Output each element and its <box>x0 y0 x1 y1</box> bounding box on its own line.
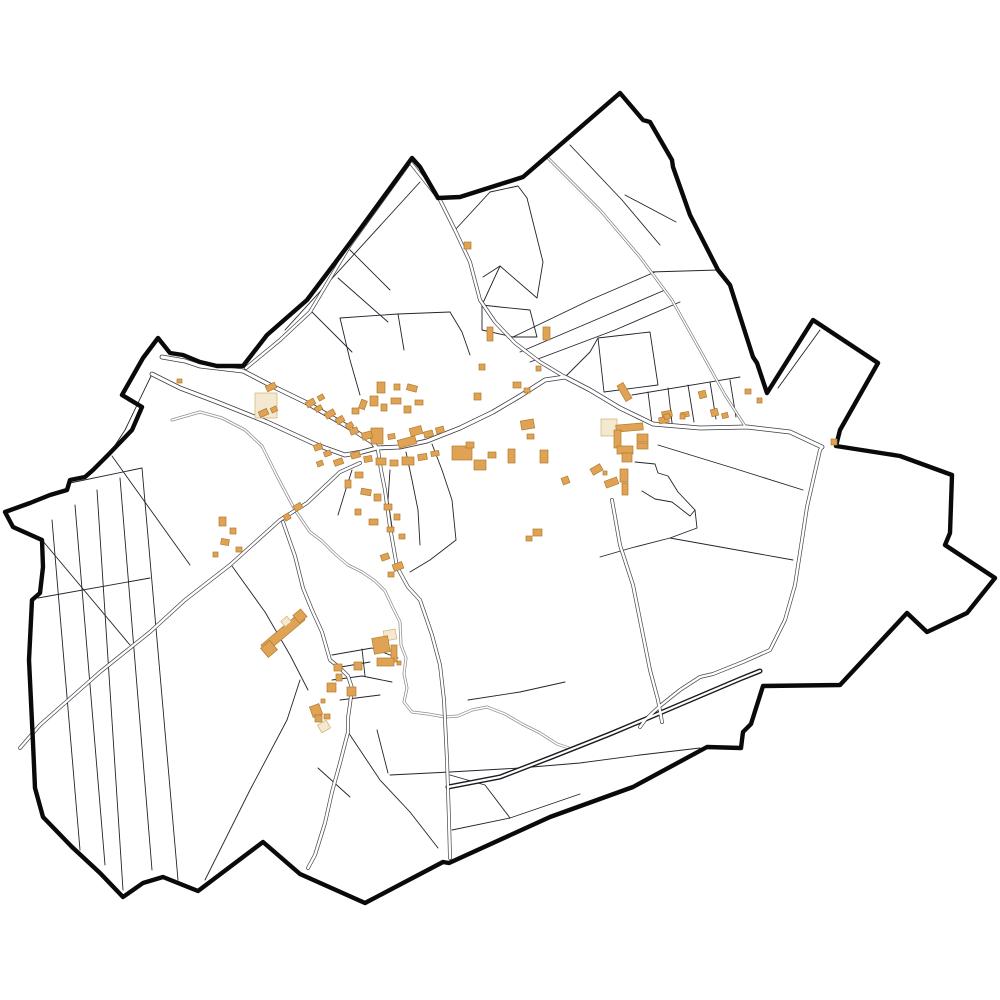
map-canvas <box>0 0 1000 1000</box>
building <box>721 412 728 418</box>
road-network <box>20 158 822 868</box>
building <box>230 528 236 534</box>
building <box>381 404 387 411</box>
building <box>369 519 378 525</box>
parcel-line <box>97 490 123 890</box>
building <box>757 398 762 403</box>
building <box>637 443 648 449</box>
building <box>374 494 381 501</box>
building <box>622 453 632 462</box>
building <box>479 364 485 370</box>
building <box>637 434 648 442</box>
building <box>404 406 411 413</box>
building <box>415 400 423 405</box>
building <box>347 687 356 696</box>
building <box>394 384 400 390</box>
parcel-line <box>468 682 565 700</box>
building <box>390 460 398 466</box>
parcel-line <box>232 566 308 690</box>
parcel-line <box>285 182 420 330</box>
building <box>409 426 423 437</box>
parcel-line <box>600 538 670 557</box>
parcel-line <box>565 338 598 377</box>
building <box>663 413 670 419</box>
building <box>397 661 401 665</box>
road-north-notch <box>246 162 565 377</box>
building <box>352 408 359 414</box>
parcel-line <box>625 195 676 222</box>
building <box>680 414 685 419</box>
building <box>355 509 361 515</box>
parcel-line <box>650 270 718 272</box>
building <box>406 384 417 392</box>
parcel-line <box>406 452 420 545</box>
building <box>388 572 394 577</box>
building <box>617 382 632 401</box>
building <box>354 662 362 670</box>
parcel-line <box>450 312 470 355</box>
building <box>316 460 323 467</box>
building <box>213 552 218 557</box>
building <box>394 514 400 520</box>
parcel-line <box>598 332 658 392</box>
building <box>831 439 837 445</box>
building <box>513 382 521 388</box>
building <box>355 472 363 478</box>
building <box>488 452 496 458</box>
building <box>317 394 325 401</box>
parcel-line <box>350 250 390 290</box>
building <box>464 242 471 249</box>
cadastral-map <box>0 0 1000 1000</box>
building <box>604 477 619 488</box>
parcel-line <box>340 695 380 700</box>
building <box>236 547 242 552</box>
building <box>745 389 751 394</box>
building <box>524 388 530 393</box>
building <box>466 442 474 448</box>
commune-boundary-outline <box>5 93 995 903</box>
parcel-line <box>42 540 130 645</box>
road-hamlet-south-casing <box>283 522 352 868</box>
parcel-line <box>38 578 150 598</box>
building <box>399 534 405 539</box>
building <box>418 453 428 460</box>
building <box>622 483 628 495</box>
parcel-line <box>310 310 352 352</box>
parcel-line <box>410 540 456 572</box>
building <box>614 430 621 448</box>
building <box>620 469 628 482</box>
parcel-line <box>398 314 404 350</box>
parcel-line <box>377 730 388 773</box>
building <box>315 715 322 722</box>
road-main-east-casing <box>377 377 822 448</box>
building <box>364 455 373 462</box>
road-main-east <box>377 377 822 448</box>
parcel-line <box>70 468 142 483</box>
building <box>527 434 534 439</box>
building <box>526 536 532 541</box>
parcel-line <box>670 538 793 560</box>
building <box>219 517 226 526</box>
building <box>323 450 331 457</box>
building <box>543 327 550 340</box>
building <box>324 714 330 719</box>
building <box>361 488 372 496</box>
building <box>536 366 541 371</box>
building <box>710 408 719 417</box>
building <box>327 683 336 692</box>
building <box>698 390 707 399</box>
parcel-line <box>340 318 360 395</box>
building <box>431 450 440 456</box>
parcel-line <box>110 374 152 453</box>
building <box>372 636 391 655</box>
parcel-lines <box>38 145 820 890</box>
building <box>520 419 534 430</box>
building <box>376 458 386 465</box>
building <box>371 428 383 444</box>
parcel-line <box>635 462 695 516</box>
parcel-line <box>658 445 803 490</box>
building <box>380 553 390 561</box>
parcel-line <box>75 505 105 865</box>
building <box>402 457 414 465</box>
building <box>474 460 486 470</box>
building <box>590 464 603 476</box>
parcel-line <box>338 470 352 515</box>
parcel-line <box>455 186 527 230</box>
building <box>388 433 396 439</box>
building <box>377 658 394 666</box>
building <box>561 476 570 485</box>
parcel-line <box>670 510 697 538</box>
parcel-line <box>348 732 438 848</box>
building <box>321 699 325 703</box>
building <box>377 382 385 393</box>
building <box>603 471 607 475</box>
building <box>540 450 548 463</box>
building <box>370 396 378 406</box>
parcel-line <box>120 478 152 870</box>
building <box>359 399 368 410</box>
parcel-line <box>52 520 80 850</box>
building <box>334 664 342 671</box>
building <box>392 562 404 572</box>
building <box>345 480 351 488</box>
building <box>177 379 182 383</box>
parcel-line <box>513 272 655 337</box>
building <box>333 458 344 467</box>
parcel-line <box>530 302 680 362</box>
parcel-line <box>482 198 543 305</box>
building <box>384 504 392 510</box>
parcel-line <box>340 312 450 318</box>
building <box>221 538 230 545</box>
parcel-line <box>112 456 190 565</box>
building <box>533 529 542 536</box>
building <box>391 398 401 404</box>
building <box>487 327 493 341</box>
building <box>474 393 481 400</box>
road-hamlet-south <box>283 522 352 868</box>
building <box>387 527 394 532</box>
commune-boundary <box>5 93 995 903</box>
building <box>336 674 342 681</box>
building <box>508 449 515 463</box>
